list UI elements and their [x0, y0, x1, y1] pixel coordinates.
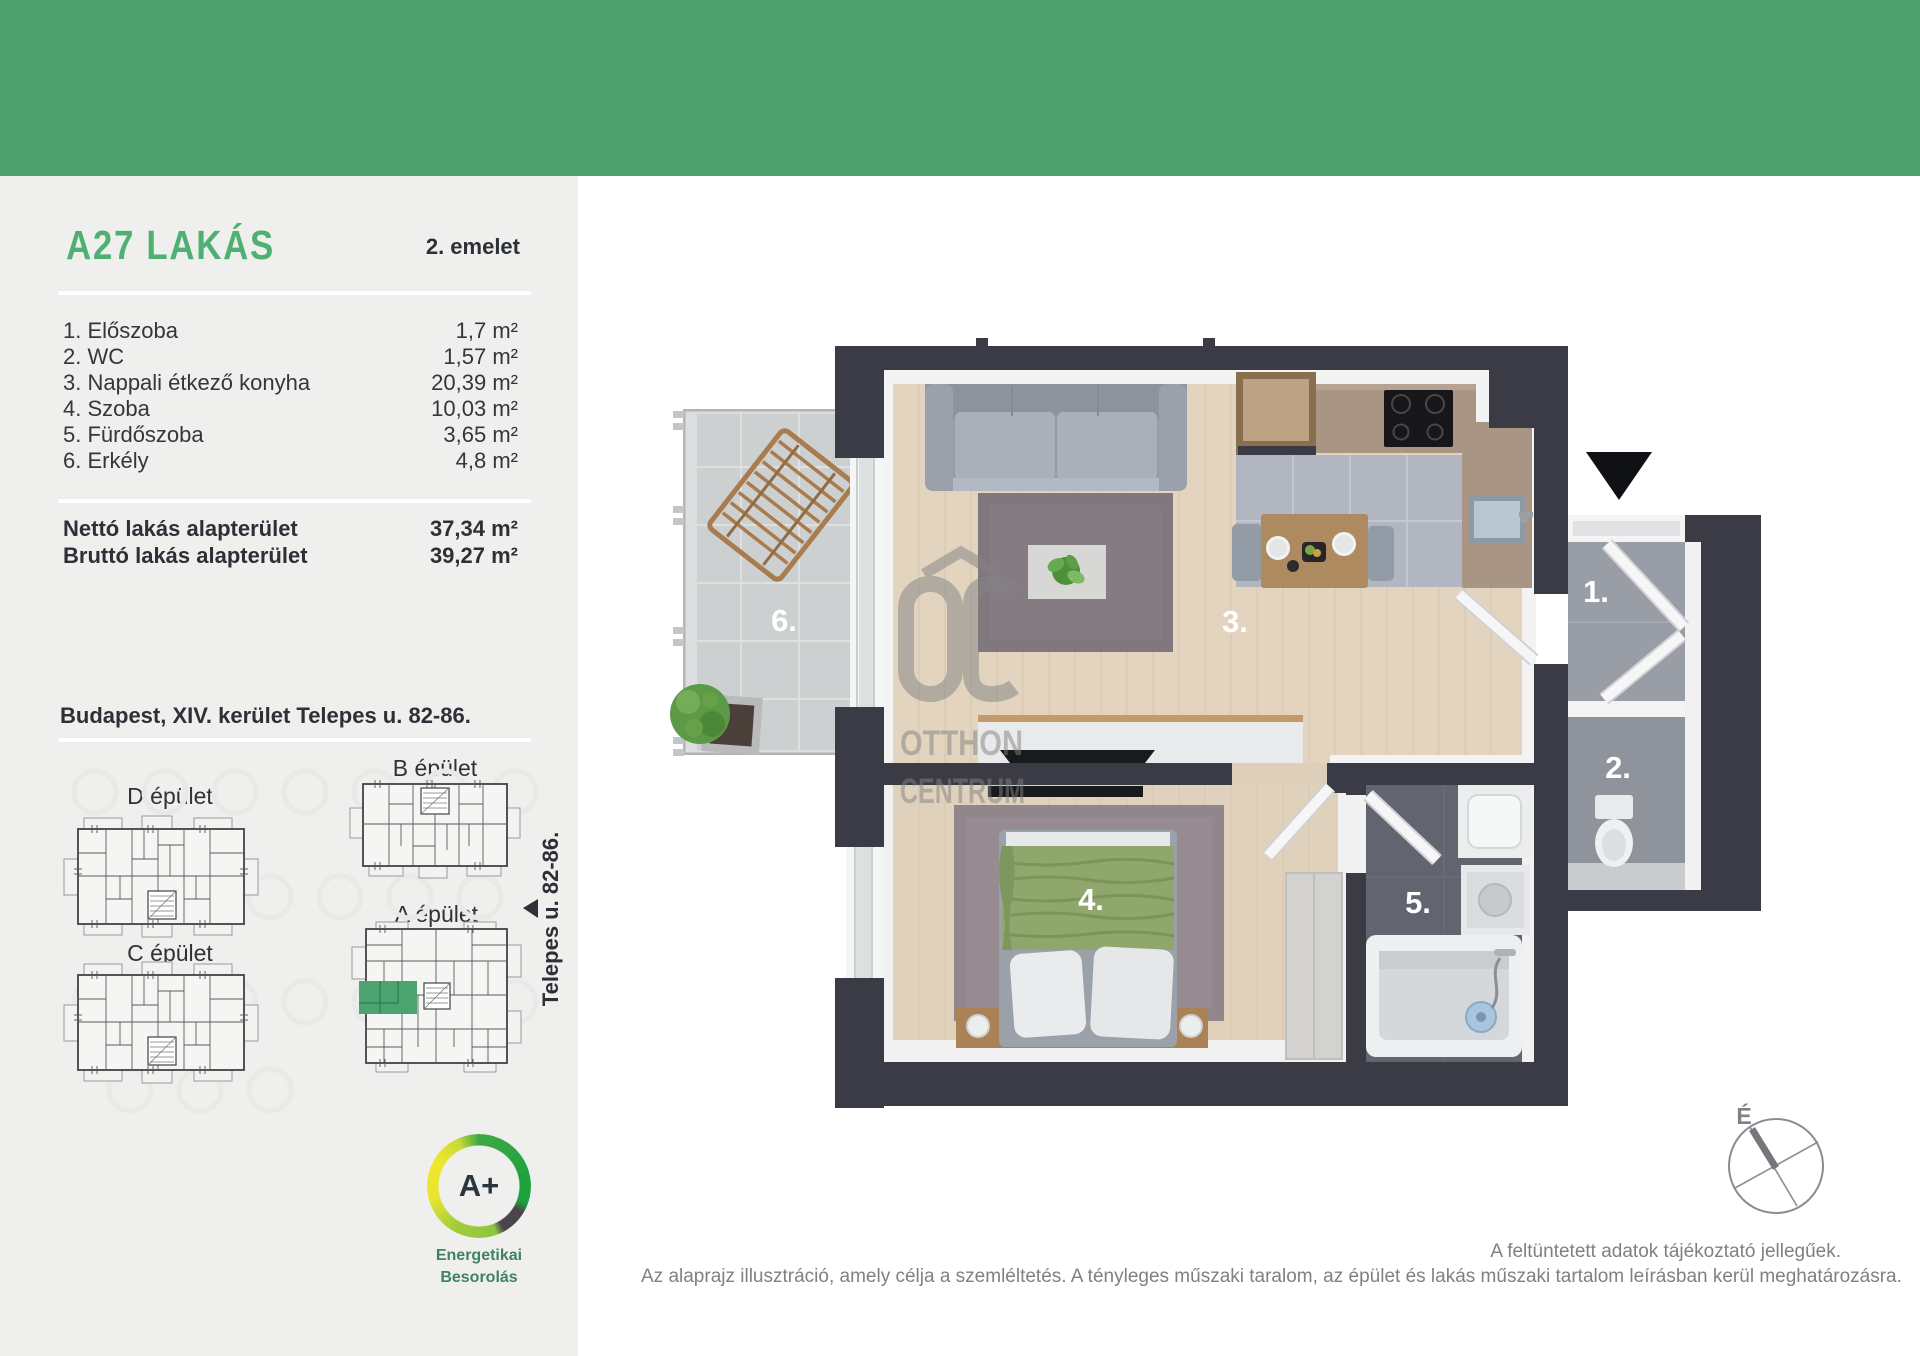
svg-text:4.: 4.: [1078, 882, 1104, 917]
svg-text:6.: 6.: [771, 603, 797, 638]
svg-text:1.: 1.: [1583, 574, 1609, 609]
svg-text:É: É: [1736, 1102, 1751, 1129]
svg-text:CENTRUM: CENTRUM: [900, 772, 1025, 811]
svg-text:2.: 2.: [1605, 750, 1631, 785]
svg-text:5.: 5.: [1405, 885, 1431, 920]
svg-text:3.: 3.: [1222, 604, 1248, 639]
svg-text:OTTHON: OTTHON: [900, 724, 1023, 763]
